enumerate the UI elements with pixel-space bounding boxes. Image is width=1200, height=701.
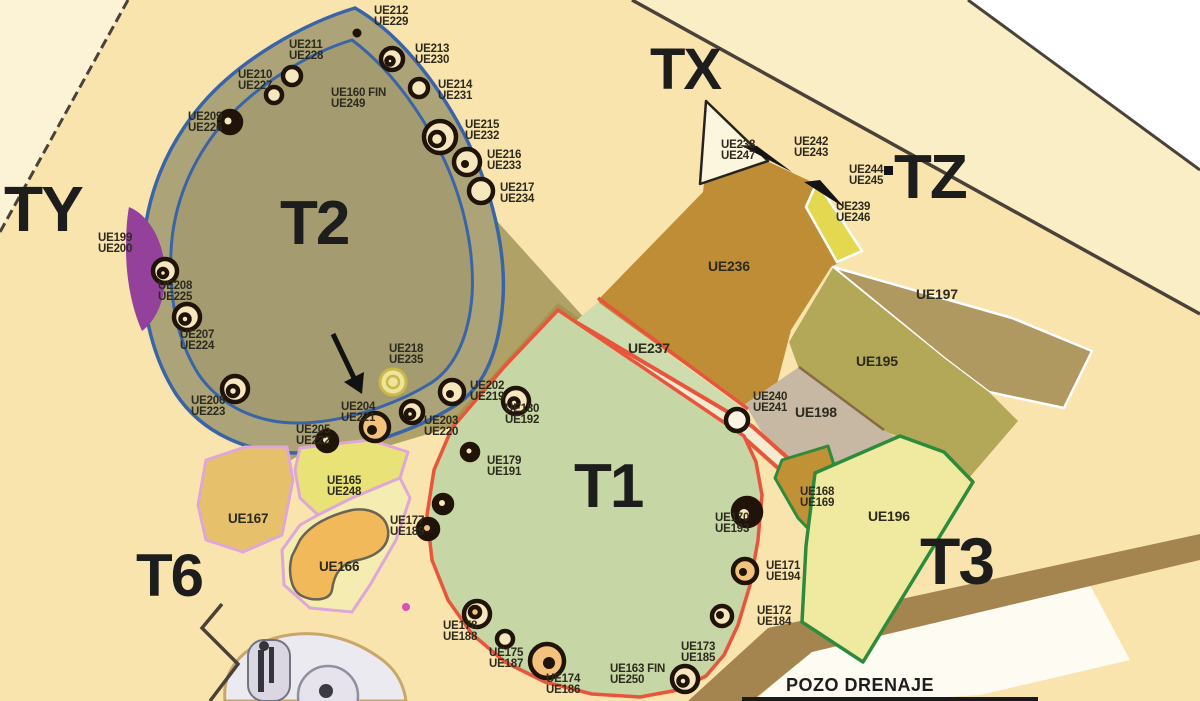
pink-marker [402, 603, 410, 611]
survey-square [884, 166, 893, 175]
pit-feature [410, 79, 428, 97]
pit-feature [439, 500, 445, 506]
channel-bar [258, 650, 264, 692]
pit-feature [467, 449, 472, 454]
pit-feature [266, 87, 282, 103]
pit-feature [739, 509, 749, 519]
pit-feature [225, 118, 232, 125]
pit-feature [323, 437, 329, 443]
pit-feature [367, 425, 377, 435]
pit-feature-ue217 [469, 179, 493, 203]
pit-feature [446, 390, 454, 398]
pit-feature-ue175 [497, 631, 513, 647]
map-canvas [0, 0, 1200, 701]
zone-ue167-patch [198, 447, 293, 552]
pit-feature [353, 29, 362, 38]
pit-feature [470, 607, 480, 617]
pit-feature [424, 525, 430, 531]
excavation-plan-map: UE212 UE229UE211 UE228UE213 UE230UE210 U… [0, 0, 1200, 701]
pit-feature [283, 67, 301, 85]
pit-feature [543, 657, 555, 669]
pit-feature [739, 568, 747, 576]
pit-feature [461, 160, 469, 168]
pit-feature [716, 611, 724, 619]
well-center-dot [319, 684, 333, 698]
pit-feature-ue218 [380, 369, 406, 395]
pit-feature-ue240 [726, 409, 748, 431]
channel-dot [259, 641, 269, 651]
channel-bar [269, 647, 274, 683]
